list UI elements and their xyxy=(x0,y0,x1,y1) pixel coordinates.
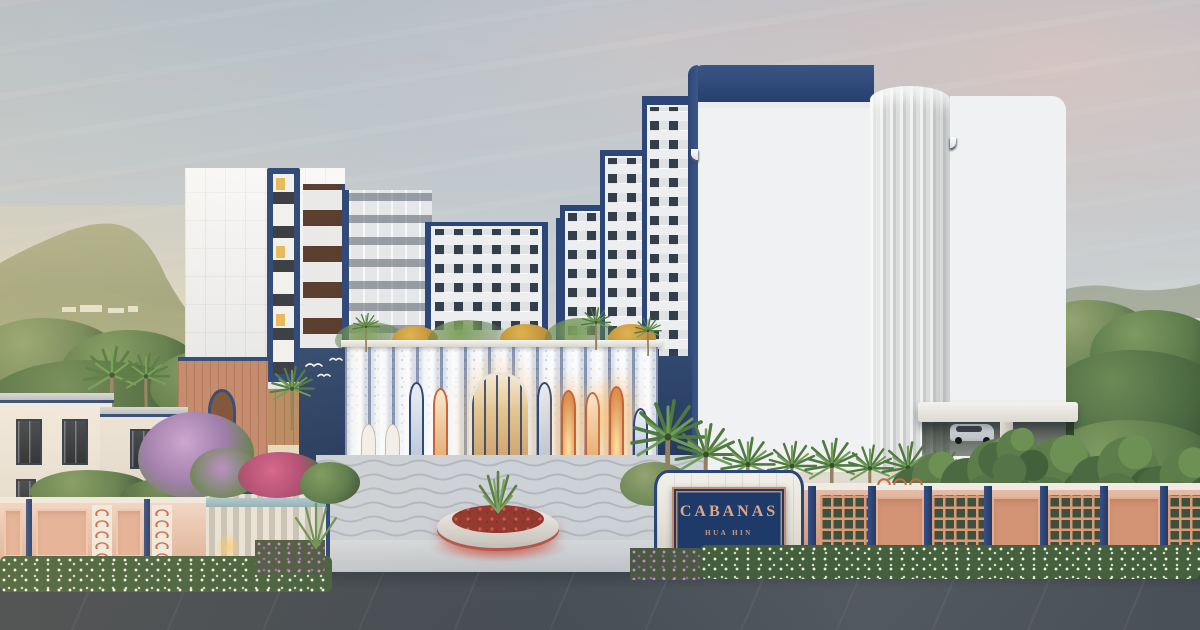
bird-icon xyxy=(318,375,330,377)
bird-icon xyxy=(330,359,342,361)
scene-cabanas-hua-hin: CABANAS HUA HIN xyxy=(0,0,1200,630)
bird-icon xyxy=(306,364,322,366)
accents-overlay xyxy=(0,0,1200,630)
